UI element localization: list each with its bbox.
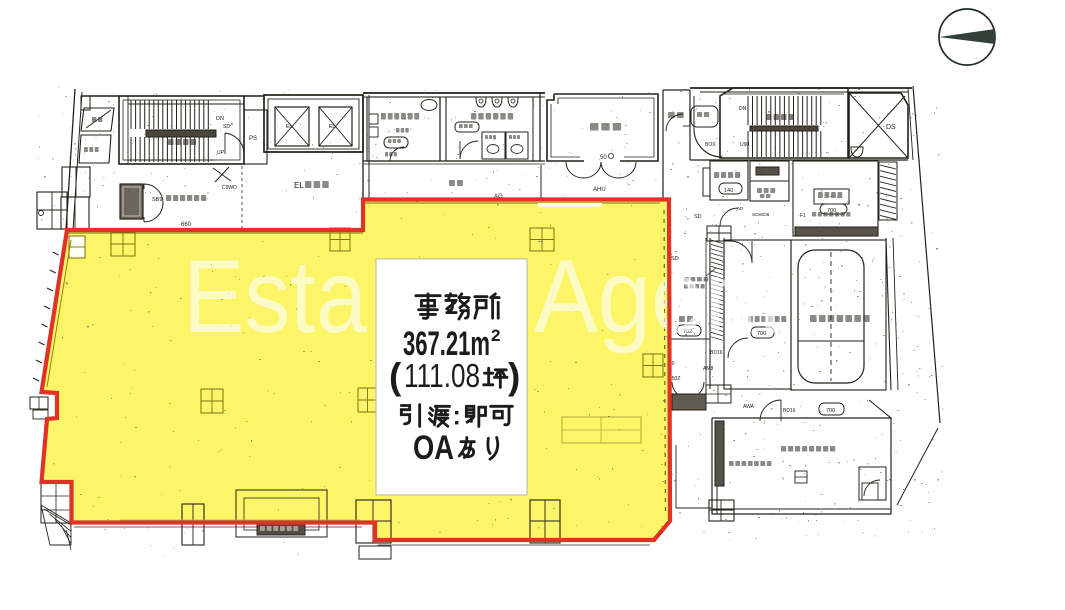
- svg-text:AD: AD: [737, 206, 744, 211]
- svg-text:111.08: 111.08: [404, 357, 480, 394]
- svg-text:AHU: AHU: [593, 187, 606, 193]
- svg-text:UP: UP: [217, 150, 225, 156]
- svg-text:SDWD6: SDWD6: [752, 212, 770, 218]
- svg-text:50: 50: [600, 155, 607, 161]
- svg-text:F1: F1: [800, 213, 806, 219]
- svg-text:SD: SD: [223, 124, 230, 130]
- svg-text:BOX: BOX: [705, 142, 716, 148]
- svg-text:PS: PS: [249, 136, 257, 142]
- svg-text:U90: U90: [740, 142, 749, 148]
- svg-text:700: 700: [826, 408, 835, 414]
- svg-text:SD: SD: [694, 214, 702, 220]
- svg-text:DN: DN: [739, 106, 747, 112]
- svg-text:EL: EL: [294, 181, 304, 190]
- svg-text:Esta: Esta: [183, 239, 367, 355]
- svg-text:AM8: AM8: [703, 366, 714, 372]
- svg-text:(: (: [389, 356, 402, 397]
- svg-text:2: 2: [491, 326, 500, 345]
- svg-text:EL: EL: [286, 124, 292, 130]
- svg-text:AWA: AWA: [743, 404, 755, 410]
- svg-text:DS: DS: [886, 124, 896, 131]
- svg-text:Agent: Agent: [534, 239, 784, 355]
- svg-text:OA: OA: [413, 429, 454, 467]
- svg-text:): ): [508, 356, 520, 397]
- svg-text:DN: DN: [216, 116, 224, 122]
- svg-text:660: 660: [181, 222, 192, 228]
- svg-text:BD16: BD16: [783, 408, 796, 414]
- svg-text:SB9: SB9: [152, 197, 162, 203]
- svg-text:EL: EL: [329, 124, 335, 130]
- svg-text:C9WD: C9WD: [222, 185, 237, 191]
